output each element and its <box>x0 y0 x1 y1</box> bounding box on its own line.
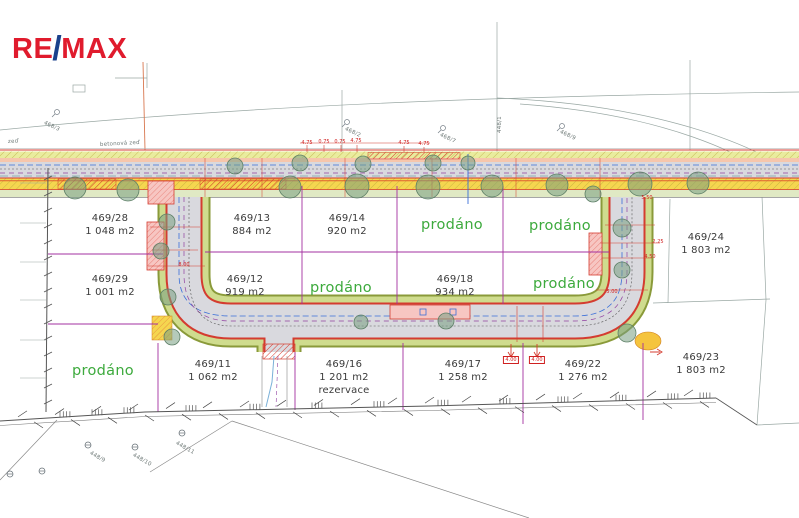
boundary-tick <box>44 400 52 404</box>
hatch-tick <box>256 413 265 419</box>
hatch-tick <box>425 397 434 403</box>
tree-icon <box>355 156 371 172</box>
boundary-hatch-ticks <box>18 390 709 428</box>
hatch-tick <box>203 402 212 408</box>
west-boundary-ticks <box>44 176 52 404</box>
logo-max: MAX <box>61 33 127 65</box>
boundary-tick <box>44 288 52 292</box>
tree-icon <box>438 313 454 329</box>
hatch-tick <box>330 411 339 417</box>
tree-icon <box>481 175 503 197</box>
tree-icon <box>614 262 630 278</box>
boundary-tick <box>44 240 52 244</box>
survey-lines <box>0 22 799 425</box>
hatch-tick <box>18 411 27 417</box>
boundary-tick <box>44 272 52 276</box>
boundary-tick <box>44 336 52 340</box>
tree-symbol-icon <box>55 110 60 115</box>
site-plan-drawing <box>0 0 799 518</box>
tree-icon <box>354 315 368 329</box>
tree-icon <box>292 155 308 171</box>
hatch-tick <box>700 401 709 407</box>
boundary-tick <box>44 384 52 388</box>
hatch-tick <box>145 415 154 421</box>
tree-symbol-icon <box>342 124 345 127</box>
hatch-tick <box>388 398 397 404</box>
hatch-tick <box>92 406 101 412</box>
boundary-tick <box>44 352 52 356</box>
hatch-tick <box>129 404 138 410</box>
hatch-tick <box>610 392 619 398</box>
tree-icon <box>613 219 631 237</box>
hatch-tick <box>647 391 656 397</box>
hatch-tick <box>684 390 693 396</box>
tree-icon <box>546 174 568 196</box>
tree-icon <box>687 172 709 194</box>
tree-symbol-icon <box>438 130 441 133</box>
boundary-tick <box>44 320 52 324</box>
tree-icon <box>416 175 440 199</box>
logo-re: RE <box>12 33 53 65</box>
boundary-tick <box>44 256 52 260</box>
boundary-tick <box>44 304 52 308</box>
tree-icon <box>279 176 301 198</box>
hatch-tick <box>663 402 672 408</box>
hatch-tick <box>182 414 191 420</box>
tree-icon <box>345 174 369 198</box>
hatch-tick <box>277 400 286 406</box>
survey-point-symbols <box>7 430 185 477</box>
tree-symbol-icon <box>560 124 565 129</box>
hatch-tick <box>293 412 302 418</box>
tree-icon <box>117 179 139 201</box>
west-boundary-stubs <box>20 183 46 378</box>
tree-symbol-icon <box>345 120 350 125</box>
hatch-tick <box>219 413 228 419</box>
tree-icon <box>159 214 175 230</box>
tree-icon <box>461 156 475 170</box>
hatch-tick <box>536 394 545 400</box>
hatch-tick <box>404 410 413 416</box>
tree-symbol-icon <box>52 114 55 117</box>
tree-icon <box>618 324 636 342</box>
tree-symbol-icon <box>441 126 446 131</box>
tree-icon <box>160 289 176 305</box>
hatch-tick <box>462 396 471 402</box>
site-plan-page: 469/281 048 m2469/13884 m2469/14920 m246… <box>0 0 799 518</box>
tree-symbol-icon <box>557 128 560 131</box>
hatch-tick <box>552 406 561 412</box>
inner-road <box>179 197 632 352</box>
tree-icon <box>164 329 180 345</box>
hatch-tick <box>240 401 249 407</box>
hatch-tick <box>351 399 360 405</box>
hatch-tick <box>55 409 64 415</box>
remax-logo: RE/MAX <box>12 28 127 67</box>
tree-point-symbols <box>52 110 565 134</box>
tree-icon <box>585 186 601 202</box>
logo-slash-icon: / <box>52 30 62 68</box>
boundary-tick <box>44 368 52 372</box>
tree-icon <box>153 243 169 259</box>
hatch-tick <box>573 393 582 399</box>
hatch-tick <box>441 409 450 415</box>
tree-icon <box>227 158 243 174</box>
hatch-tick <box>478 408 487 414</box>
tree-icon <box>628 172 652 196</box>
hatch-tick <box>166 403 175 409</box>
hatch-tick <box>367 410 376 416</box>
tree-icon <box>64 177 86 199</box>
utility-corridor <box>262 356 287 407</box>
hatch-tick <box>589 405 598 411</box>
utility-line <box>143 62 145 150</box>
tree-icon <box>425 155 441 171</box>
hatch-tick <box>626 404 635 410</box>
